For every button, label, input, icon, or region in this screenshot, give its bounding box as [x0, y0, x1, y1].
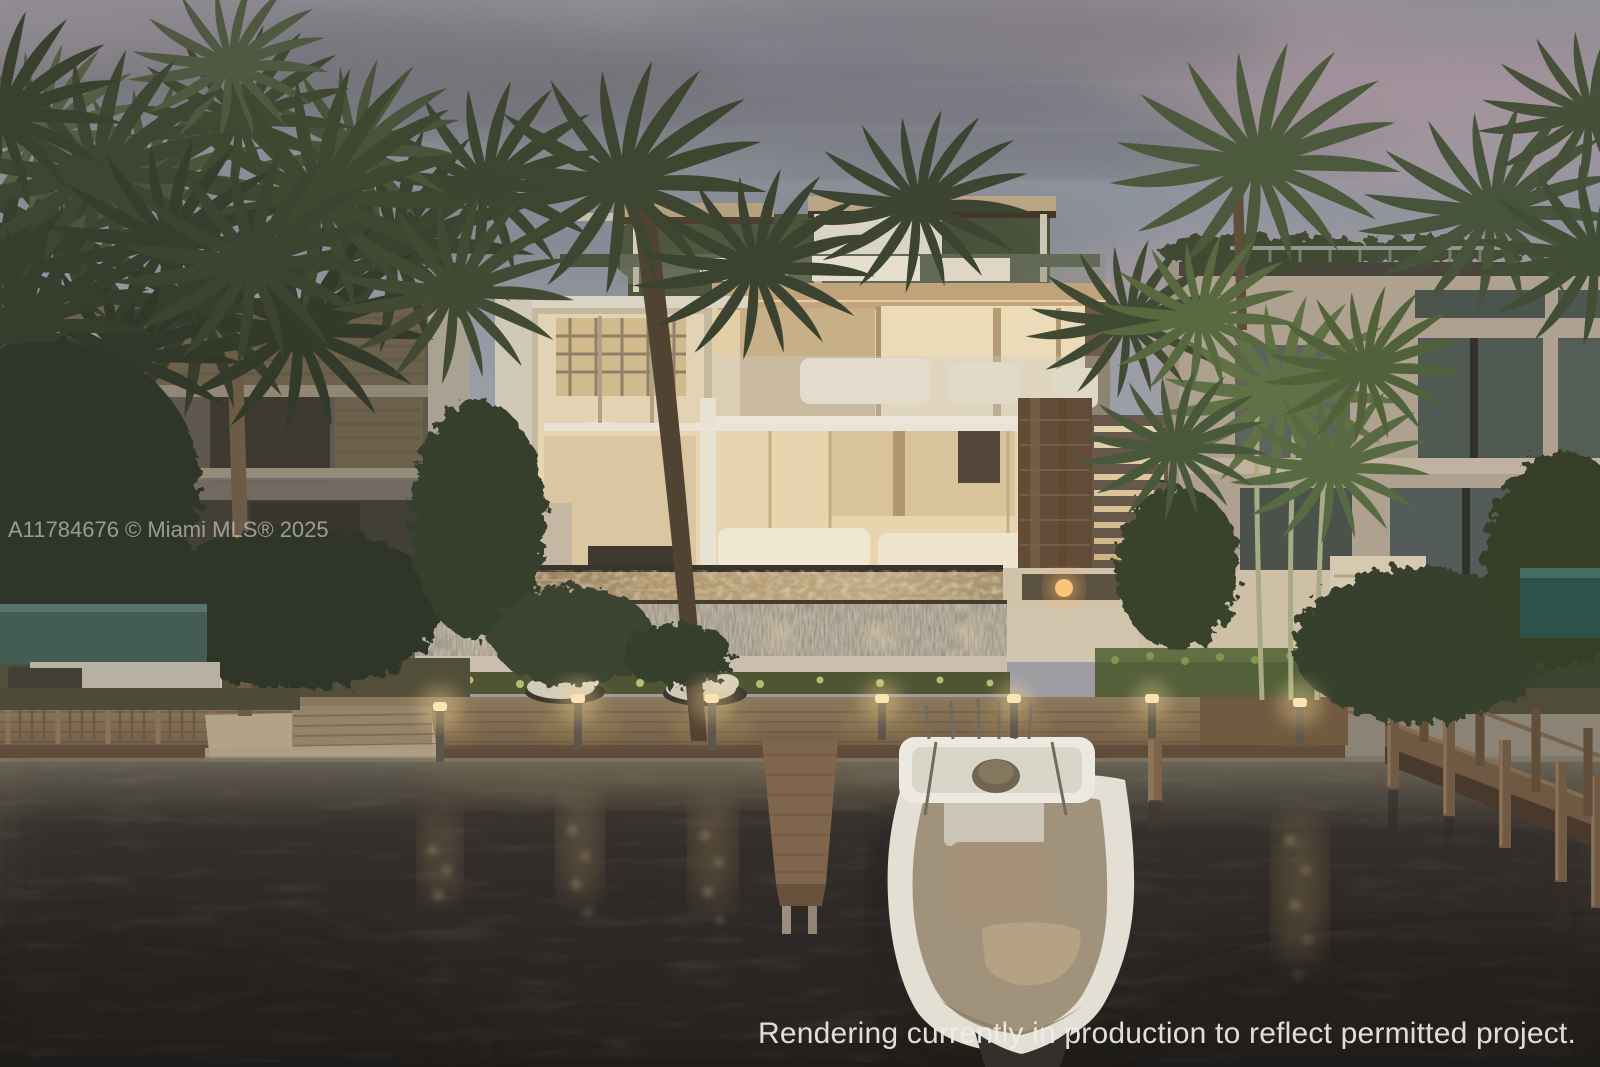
svg-text:Rendering currently in product: Rendering currently in production to ref…: [758, 1017, 1576, 1050]
svg-text:A11784676 © Miami MLS® 2025: A11784676 © Miami MLS® 2025: [8, 517, 329, 542]
